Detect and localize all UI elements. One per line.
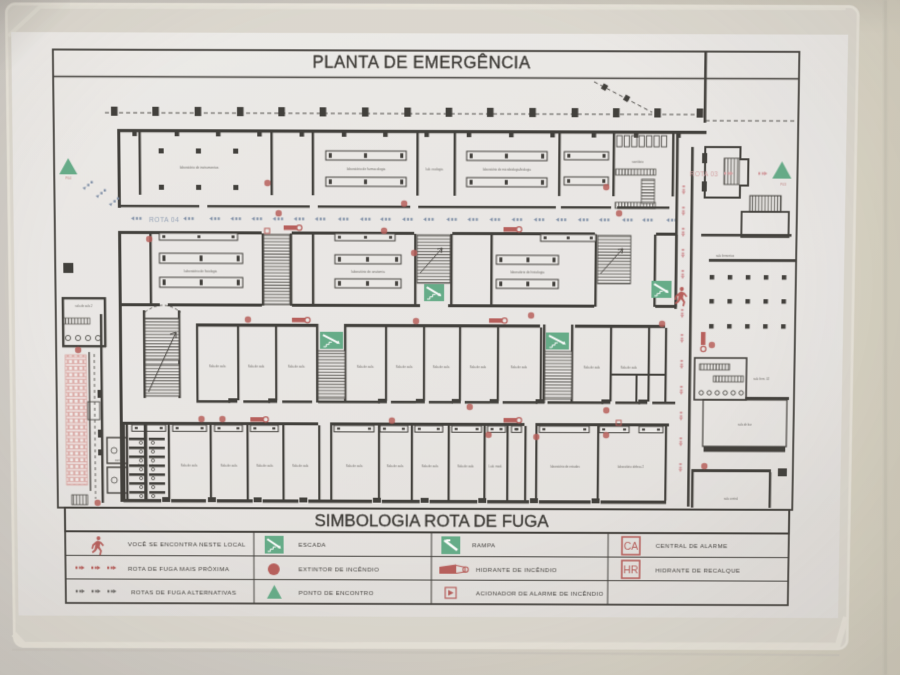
svg-text:HIDRANTE DE RECALQUE: HIDRANTE DE RECALQUE — [655, 568, 740, 575]
svg-text:lab. ecologia: lab. ecologia — [426, 167, 443, 171]
svg-text:Sala de aula: Sala de aula — [209, 364, 226, 368]
svg-text:Sala de aula: Sala de aula — [220, 464, 237, 468]
svg-text:HR: HR — [623, 565, 639, 577]
svg-text:Sala de aula: Sala de aula — [433, 365, 450, 369]
svg-text:laboratório de histologia: laboratório de histologia — [510, 270, 544, 274]
svg-text:laboratório de farmacologia: laboratório de farmacologia — [347, 167, 386, 171]
svg-text:Sala de aula: Sala de aula — [181, 464, 198, 468]
svg-text:sala de bar: sala de bar — [738, 423, 752, 427]
svg-text:laboratório de microbiologia/b: laboratório de microbiologia/biologia — [483, 168, 531, 172]
svg-text:laboratório de anatomia: laboratório de anatomia — [351, 270, 385, 274]
svg-text:Sala de aula: Sala de aula — [396, 365, 413, 369]
svg-text:Sala de aula: Sala de aula — [387, 464, 404, 468]
svg-text:sanitário: sanitário — [632, 160, 644, 164]
svg-text:EXTINTOR DE INCÊNDIO: EXTINTOR DE INCÊNDIO — [299, 565, 380, 573]
svg-text:Sala de aula: Sala de aula — [511, 365, 528, 369]
svg-text:ROTAS DE FUGA ALTERNATIVAS: ROTAS DE FUGA ALTERNATIVAS — [131, 589, 236, 596]
svg-text:ROTA DE FUGA MAIS PRÓXIMA: ROTA DE FUGA MAIS PRÓXIMA — [128, 566, 230, 573]
svg-text:laboratório de instrumentos: laboratório de instrumentos — [180, 166, 219, 170]
svg-text:Sala de aula: Sala de aula — [346, 464, 363, 468]
svg-text:Sala de aula: Sala de aula — [292, 464, 309, 468]
svg-text:sala de aula 2: sala de aula 2 — [75, 304, 93, 308]
svg-text:Sala de aula: Sala de aula — [421, 464, 438, 468]
svg-text:PLANTA DE EMERGÊNCIA: PLANTA DE EMERGÊNCIA — [312, 52, 531, 72]
svg-text:CENTRAL DE ALARME: CENTRAL DE ALARME — [656, 543, 728, 550]
svg-text:Sala de aula: Sala de aula — [457, 464, 474, 468]
svg-text:Sala de aula: Sala de aula — [256, 464, 273, 468]
svg-text:laboratório de estudos: laboratório de estudos — [550, 465, 580, 469]
svg-text:P04: P04 — [65, 176, 71, 180]
svg-text:P03: P03 — [780, 183, 786, 187]
svg-text:laboratório defesa 2: laboratório defesa 2 — [618, 465, 645, 469]
svg-text:ROTA 04: ROTA 04 — [149, 217, 179, 224]
svg-text:ACIONADOR DE ALARME DE INCÊNDI: ACIONADOR DE ALARME DE INCÊNDIO — [476, 590, 604, 598]
svg-text:Sala de aula: Sala de aula — [357, 365, 374, 369]
svg-text:Sala de aula: Sala de aula — [620, 366, 637, 370]
svg-text:Sala de aula: Sala de aula — [248, 364, 265, 368]
svg-text:sala ferm. 02: sala ferm. 02 — [753, 377, 770, 381]
svg-text:laboratório de fisiologia: laboratório de fisiologia — [184, 269, 217, 273]
svg-text:VOCÊ SE ENCONTRA NESTE LOCAL: VOCÊ SE ENCONTRA NESTE LOCAL — [128, 540, 246, 548]
svg-text:RAMPA: RAMPA — [472, 542, 496, 549]
svg-text:Sala de aula: Sala de aula — [288, 365, 305, 369]
svg-text:ESCADA: ESCADA — [298, 542, 326, 549]
svg-text:Sala de aula: Sala de aula — [583, 366, 600, 370]
svg-text:Sala de aula: Sala de aula — [470, 365, 487, 369]
svg-text:sala fermentos: sala fermentos — [716, 254, 735, 258]
svg-text:PONTO DE ENCONTRO: PONTO DE ENCONTRO — [299, 590, 374, 597]
svg-text:ROTA 03: ROTA 03 — [690, 172, 719, 179]
svg-text:SIMBOLOGIA ROTA DE FUGA: SIMBOLOGIA ROTA DE FUGA — [314, 511, 549, 530]
svg-text:HIDRANTE DE INCÊNDIO: HIDRANTE DE INCÊNDIO — [476, 566, 557, 574]
svg-text:Lab. mod.: Lab. mod. — [489, 465, 502, 469]
svg-text:CA: CA — [624, 541, 640, 553]
svg-text:sala central: sala central — [724, 497, 739, 501]
